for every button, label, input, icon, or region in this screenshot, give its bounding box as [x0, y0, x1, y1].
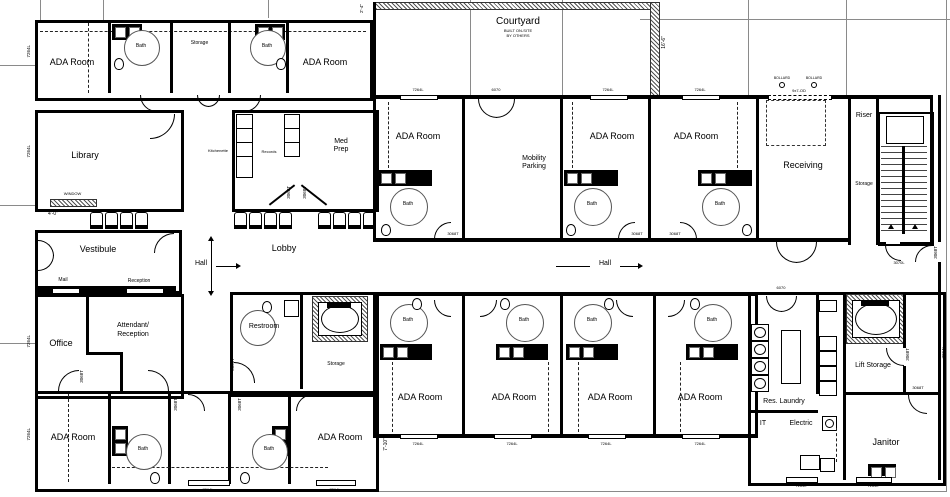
door-swing — [496, 99, 515, 118]
bollard-label: BOLLARD — [802, 77, 826, 81]
window-tag: 7264L — [400, 442, 436, 446]
kitchenette-cabinet — [236, 142, 253, 157]
records-cabinet — [284, 114, 300, 129]
toilet-icon — [566, 224, 576, 236]
room-label: ADA Room — [668, 131, 724, 141]
window-tag: 7264L — [590, 88, 626, 92]
room-label: Courtyard — [483, 16, 553, 27]
door-tag: 3068T — [80, 370, 85, 383]
door-swing — [616, 300, 633, 317]
grid-line — [470, 0, 471, 97]
toilet-icon — [412, 298, 422, 310]
courtyard-wall-hatch — [375, 2, 658, 10]
vanity-counter — [698, 170, 752, 186]
door-swing — [208, 95, 220, 107]
unit-dashed-line — [578, 362, 579, 432]
wall — [86, 352, 122, 355]
door-tag: 3068T — [442, 232, 464, 236]
hall-label: Hall — [592, 260, 618, 268]
door-tag: 3068T — [174, 398, 179, 411]
room-label: ADA Room — [297, 57, 353, 67]
wall — [560, 296, 563, 438]
door-swing — [776, 242, 797, 263]
room-label: ADA Room — [45, 432, 101, 442]
window-tag: 7264L — [27, 335, 32, 348]
future-wall-dashed — [836, 428, 837, 462]
door-swing — [668, 300, 685, 317]
wall — [748, 410, 818, 413]
stair-rail — [902, 146, 905, 234]
toilet-icon — [690, 298, 700, 310]
wall — [120, 352, 123, 392]
bollard-icon — [811, 82, 817, 88]
chair-icon — [234, 212, 247, 229]
unit-dashed-line — [680, 362, 681, 432]
window — [188, 480, 230, 486]
stair-up-arrow — [912, 224, 918, 229]
room-label: Bath — [509, 318, 539, 324]
window-tag: 7264L — [781, 484, 821, 488]
chair-icon — [120, 212, 133, 229]
window — [590, 95, 628, 100]
room-label: Electric — [780, 420, 822, 428]
toilet-icon — [500, 298, 510, 310]
room-label: ADA Room — [44, 57, 100, 67]
window-tag: 7264L — [494, 442, 530, 446]
wall — [903, 292, 906, 348]
utility-cabinet — [819, 336, 837, 351]
window — [588, 434, 626, 439]
sink-icon — [284, 300, 299, 317]
door-tag: 3068T — [470, 293, 492, 297]
washer-icon — [751, 341, 769, 358]
door-tag: 3068T — [664, 232, 686, 236]
wall — [300, 294, 303, 389]
door-tag: 3068T — [287, 186, 292, 199]
room-label: Storage — [316, 362, 356, 368]
arrow-right-icon — [638, 263, 643, 269]
door-tag: 3068T — [656, 293, 678, 297]
door-tag: 6070 — [480, 88, 512, 92]
room-label: Bath — [705, 202, 735, 208]
door-tag: 3068T — [906, 348, 911, 361]
toilet-icon — [604, 298, 614, 310]
room-label: Riser — [849, 112, 879, 120]
room-label: Reception — [104, 331, 162, 339]
toilet-icon — [742, 224, 752, 236]
wall — [168, 394, 171, 484]
courtyard-note: BY OTHERS — [483, 34, 553, 38]
room-label: Mobility Parking — [510, 155, 558, 171]
window — [316, 480, 356, 486]
door-tag: 3070L — [884, 261, 914, 265]
it-equipment — [820, 458, 835, 472]
mop-sink — [868, 464, 896, 476]
chair-icon — [90, 212, 103, 229]
room-label: Receiving — [768, 160, 838, 170]
window — [400, 95, 438, 100]
wall — [228, 394, 231, 484]
window-tag: 7264L — [188, 488, 228, 492]
grid-line — [40, 0, 41, 20]
toilet-icon — [150, 472, 160, 484]
door-tag: 3068T — [624, 293, 646, 297]
wall — [462, 296, 465, 438]
room-label: Res. Laundry — [753, 398, 815, 406]
washer-icon — [751, 324, 769, 341]
room-label: Bath — [255, 447, 283, 453]
door-swing — [434, 300, 451, 317]
window-tag: 7264L — [27, 428, 32, 441]
it-equipment — [800, 455, 820, 470]
room-label: Bath — [577, 202, 607, 208]
unit-dashed-line — [737, 102, 738, 168]
room-label: Bath — [253, 44, 281, 50]
room-label: ADA Room — [582, 392, 638, 402]
dimension: 16'-6" — [662, 36, 667, 49]
wall — [560, 99, 563, 242]
dimension: 7'-10" — [384, 438, 389, 451]
toilet-icon — [276, 58, 286, 70]
unit-dashed-line — [388, 102, 389, 168]
wall — [373, 99, 376, 242]
room-label: ADA Room — [486, 392, 542, 402]
wall — [462, 99, 465, 242]
wall — [648, 99, 651, 242]
room-label: Lobby — [262, 243, 306, 253]
room-label: Vestibule — [68, 244, 128, 254]
window-tag: 7264L — [27, 45, 32, 58]
toilet-icon — [381, 224, 391, 236]
room-label: Bath — [129, 447, 157, 453]
arrow-up-icon — [208, 236, 214, 241]
arrow-down-icon — [208, 291, 214, 296]
room-label: Bath — [577, 318, 607, 324]
vanity-counter — [378, 170, 432, 186]
vanity-counter — [564, 170, 618, 186]
window-tag: 7264L — [400, 88, 436, 92]
door-swing — [478, 99, 497, 118]
dryer-icon — [751, 375, 769, 392]
room-label: Restroom — [232, 323, 296, 331]
window-label: WINDOW — [50, 192, 95, 196]
lift-door — [327, 303, 351, 308]
wall — [373, 2, 376, 97]
room-label: ADA Room — [584, 131, 640, 141]
hall-arrow-line — [216, 266, 236, 267]
door-tag: 3068T — [442, 293, 464, 297]
room-label: Storage — [183, 41, 216, 47]
bollard-icon — [779, 82, 785, 88]
toilet-icon — [240, 472, 250, 484]
room-label: ADA Room — [392, 392, 448, 402]
grid-line — [846, 0, 847, 97]
dimension: 4'-0" — [40, 212, 66, 218]
utility-cabinet — [819, 381, 837, 396]
window-tag: 7264L — [682, 442, 718, 446]
room-label: ADA Room — [390, 131, 446, 141]
vanity-counter — [686, 344, 738, 360]
grid-line — [562, 0, 563, 97]
utility-cabinet — [819, 300, 837, 312]
grid-line — [748, 0, 749, 97]
window — [682, 434, 720, 439]
unit-dashed-line — [548, 362, 549, 432]
wall — [848, 99, 851, 245]
grid-line — [103, 0, 104, 20]
records-cabinet — [284, 128, 300, 143]
window-tag: 7264L — [682, 88, 718, 92]
window-tag: 7264L — [853, 484, 893, 488]
vanity-counter — [566, 344, 618, 360]
door-tag: 6070 — [766, 286, 796, 290]
wall — [756, 99, 759, 242]
door-tag: 3068T — [934, 246, 939, 259]
kitchenette-cabinet — [236, 156, 253, 178]
unit-dashed-line — [572, 102, 573, 168]
window — [494, 434, 532, 439]
arrow-right-icon — [236, 263, 241, 269]
room-label: Lift Storage — [850, 362, 896, 370]
room-label: Bath — [697, 318, 727, 324]
dimension: 2'-4" — [360, 4, 365, 13]
stair-up-arrow — [888, 224, 894, 229]
door-tag: 3068T — [303, 186, 308, 199]
door-swing — [796, 242, 817, 263]
grid-line — [0, 205, 35, 206]
room-label: Janitor — [858, 437, 914, 447]
grid-line — [0, 65, 35, 66]
wall — [938, 95, 941, 242]
window-tag: 7264L — [588, 442, 624, 446]
kitchenette-cabinet — [236, 114, 253, 129]
chair-icon — [348, 212, 361, 229]
chair-icon — [318, 212, 331, 229]
stair-landing — [886, 116, 924, 144]
chair-icon — [249, 212, 262, 229]
chair-icon — [333, 212, 346, 229]
door-swing — [915, 245, 932, 262]
floor-plan: ADA Room ADA Room Storage Bath Bath 7264… — [0, 0, 950, 497]
room-label: Attendant/ — [104, 322, 162, 330]
door-tag: 3068T — [626, 232, 648, 236]
room-label: Bath — [393, 318, 423, 324]
room-label: Bath — [127, 44, 155, 50]
hall-arrow-line — [556, 266, 590, 267]
chair-icon — [279, 212, 292, 229]
chair-icon — [135, 212, 148, 229]
room-label: Storage — [849, 182, 879, 188]
room-label: ADA Room — [312, 432, 368, 442]
window — [400, 434, 438, 439]
room-label: Records — [255, 150, 283, 154]
wall — [108, 394, 111, 484]
vanity-counter — [380, 344, 432, 360]
room-label: Kitchenette — [200, 149, 236, 153]
wall — [108, 23, 111, 93]
overhead-door-tag: 9x7-OD — [780, 89, 818, 93]
bollard-label: BOLLARD — [770, 77, 794, 81]
door-swing — [480, 300, 497, 317]
wall — [288, 394, 291, 484]
chair-icon — [105, 212, 118, 229]
door-tag: 3068T — [231, 358, 236, 371]
toilet-icon — [114, 58, 124, 70]
room-label: Bath — [393, 202, 423, 208]
laundry-island — [781, 330, 801, 384]
door-swing — [885, 245, 901, 261]
window-tag: 7264L — [316, 488, 354, 492]
window — [682, 95, 720, 100]
door-tag: 3068T — [238, 398, 243, 411]
wall — [170, 23, 173, 93]
window-hatch — [50, 199, 97, 207]
window-tag: 7264L — [27, 145, 32, 158]
records-cabinet — [284, 142, 300, 157]
hall-arrow-line — [620, 266, 638, 267]
wall — [228, 23, 231, 93]
courtyard-wall-hatch — [650, 2, 660, 98]
electric-panel-icon — [822, 416, 837, 431]
kitchenette-cabinet — [236, 128, 253, 143]
toilet-icon — [262, 301, 272, 313]
door-tag: 3068T — [906, 386, 930, 390]
hall-label: Hall — [188, 260, 214, 268]
dryer-icon — [751, 358, 769, 375]
utility-cabinet — [819, 351, 837, 366]
chair-icon — [264, 212, 277, 229]
wall — [286, 23, 289, 93]
lift-door — [861, 301, 889, 306]
utility-cabinet — [819, 366, 837, 381]
window-tag: 7264L — [942, 346, 947, 359]
room-label: Med Prep — [326, 138, 356, 154]
receiving-pad — [766, 100, 826, 146]
wall — [86, 296, 89, 354]
room-label: Office — [38, 338, 84, 348]
unit-dashed-line — [392, 362, 393, 432]
grid-line — [946, 0, 947, 492]
grid-line — [268, 0, 269, 18]
grid-line — [640, 19, 950, 20]
room-label: Library — [55, 150, 115, 160]
hall-wall — [373, 292, 758, 296]
vanity-counter — [496, 344, 548, 360]
room-label: IT — [754, 420, 772, 428]
wall — [653, 296, 656, 438]
mail-label: Mail — [48, 278, 78, 284]
reception-label: Reception — [114, 279, 164, 285]
